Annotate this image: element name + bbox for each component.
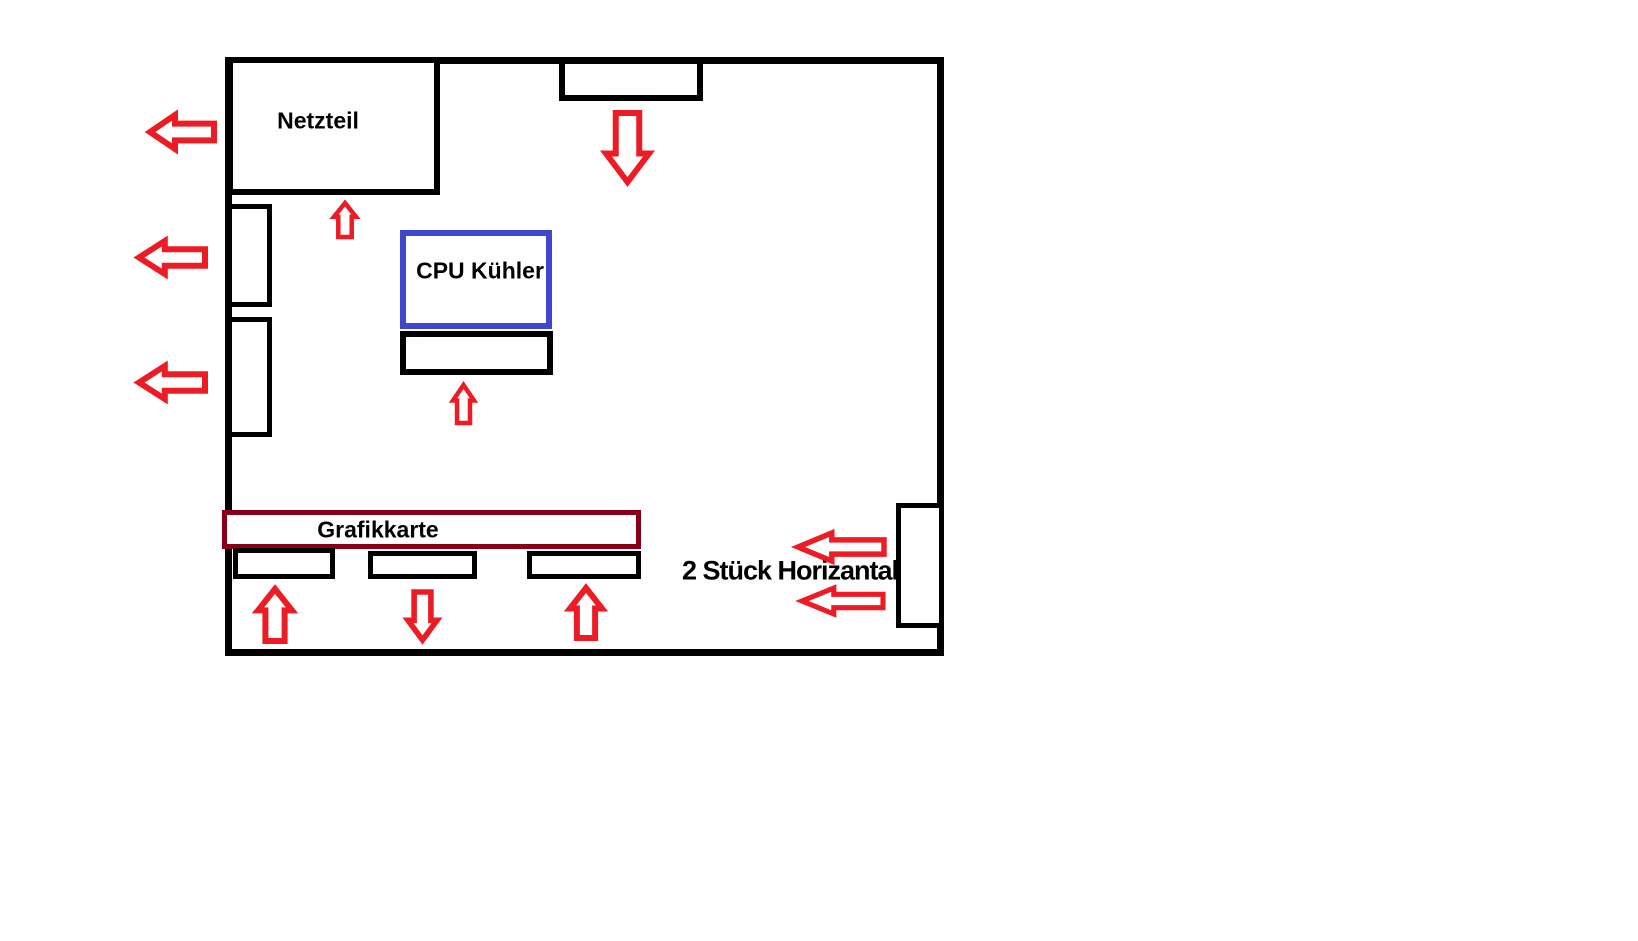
pc-case-airflow-diagram: Netzteil CPU Kühler Grafikkarte 2 Stück … (0, 0, 1638, 941)
left-vent-upper (227, 204, 272, 307)
airflow-arrow-bottom-2-down (405, 589, 440, 643)
bottom-fan-1 (233, 548, 335, 579)
gpu-label: Grafikkarte (317, 517, 438, 544)
airflow-arrow-top-fan-down (603, 110, 652, 185)
airflow-arrow-bottom-1-up (255, 586, 295, 644)
right-fan-box (896, 503, 944, 628)
airflow-arrow-right-upper-in (795, 530, 887, 564)
airflow-arrow-left-bottom (136, 363, 208, 402)
cpu-cooler-label: CPU Kühler (416, 258, 544, 285)
bottom-fan-3 (527, 551, 641, 579)
airflow-arrow-cpu-up (450, 382, 477, 426)
airflow-arrow-left-top (147, 112, 217, 152)
airflow-arrow-bottom-3-up (567, 585, 605, 641)
psu-label: Netzteil (277, 108, 359, 135)
airflow-arrow-left-middle (136, 238, 208, 277)
airflow-arrow-right-lower-in (799, 585, 886, 617)
bottom-fan-2 (368, 551, 477, 579)
top-fan-box (559, 58, 703, 101)
cpu-heatsink-box (400, 331, 553, 375)
left-vent-lower (227, 317, 272, 437)
airflow-arrow-psu-up (331, 200, 359, 240)
